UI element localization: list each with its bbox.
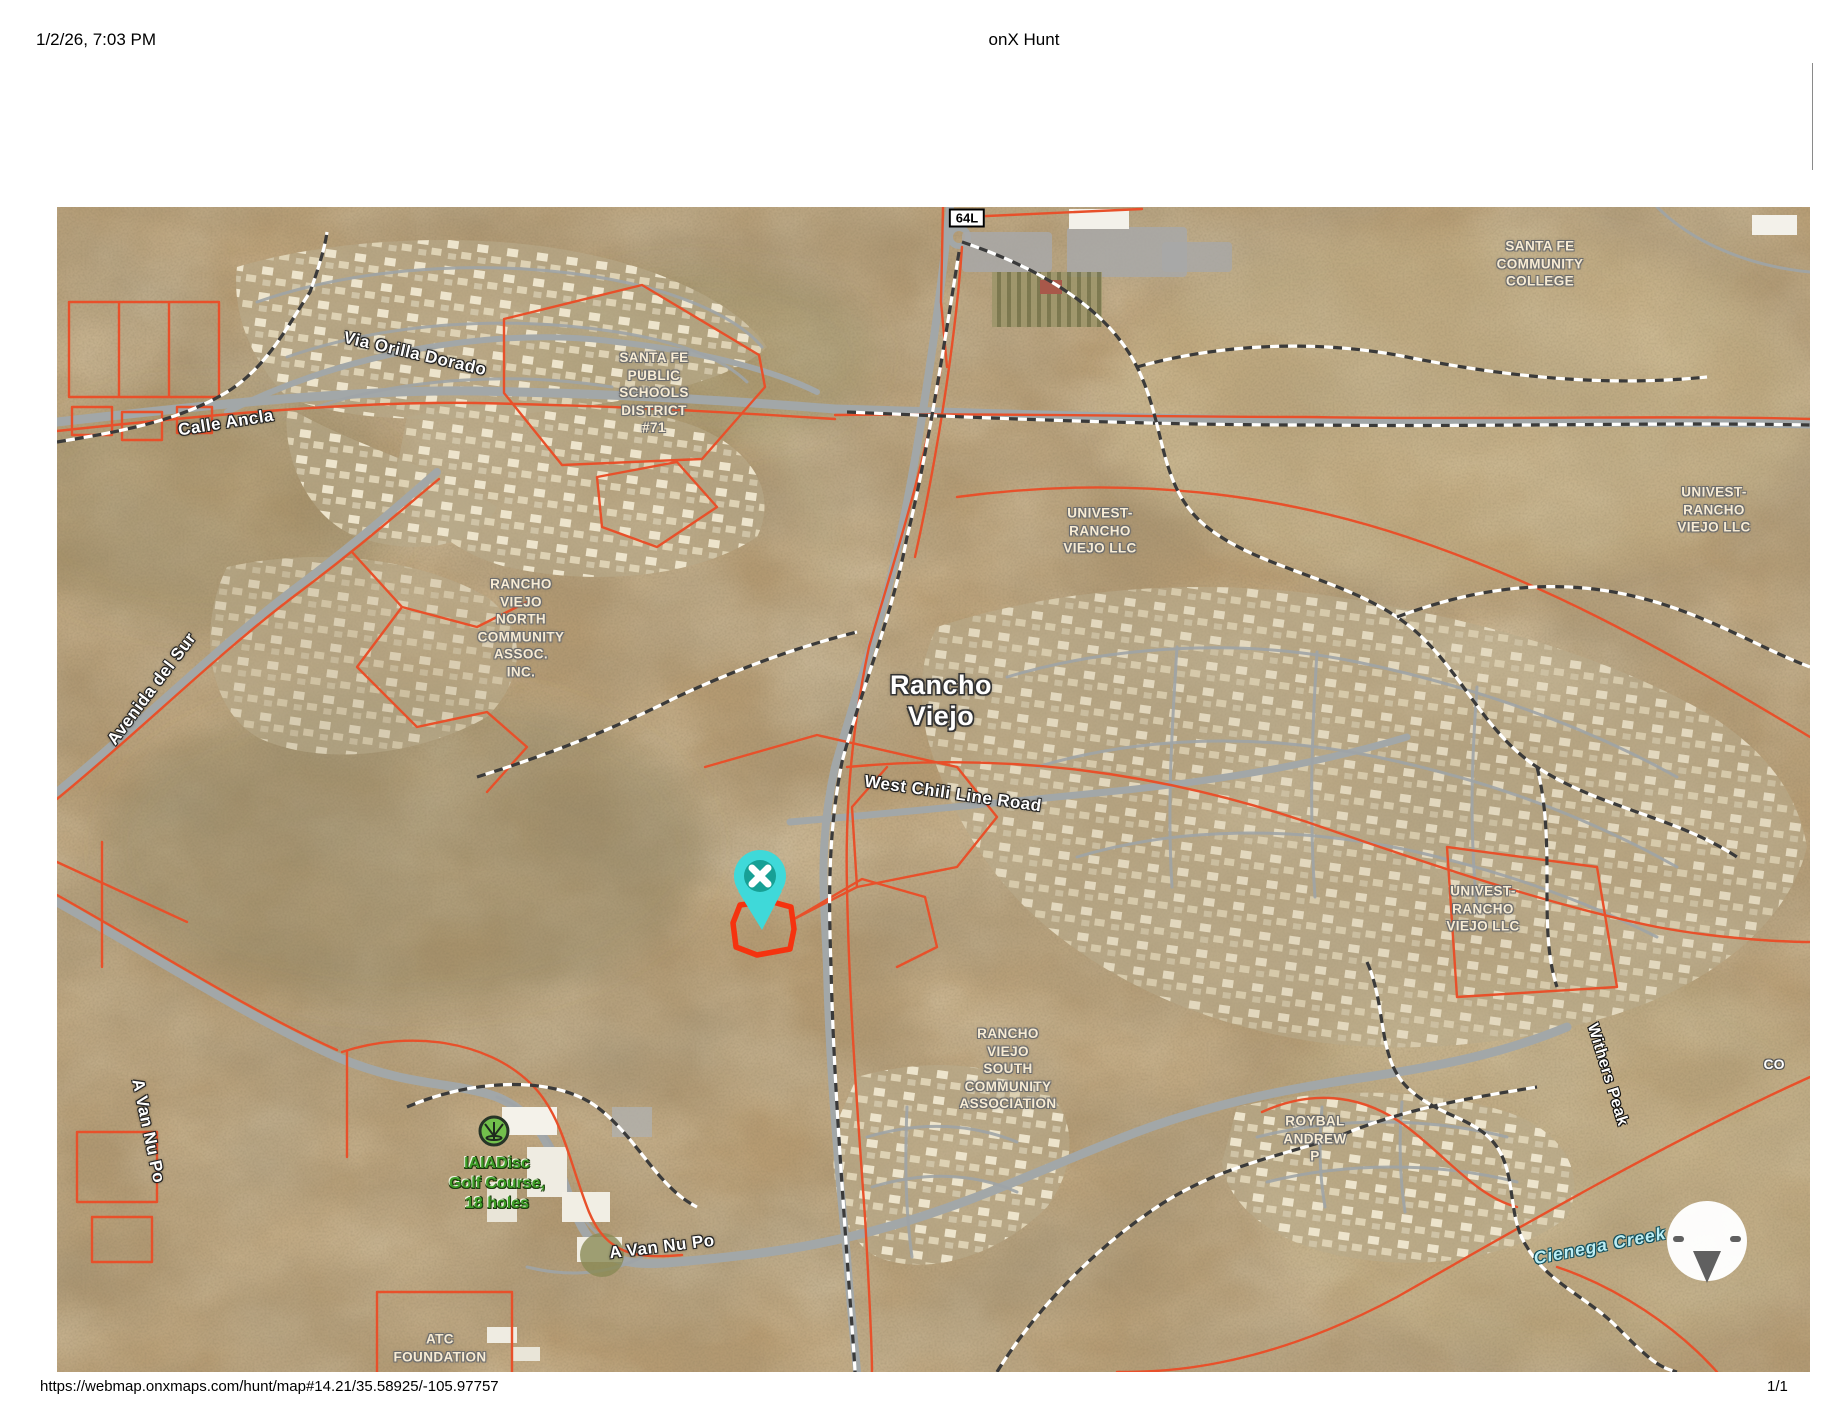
satellite-map[interactable]: 64L SANTA FECOMMUNITYCOLLEGE SANTA FEPUB… — [57, 207, 1810, 1372]
satellite-imagery — [57, 207, 1810, 1372]
route-badge-64l: 64L — [949, 209, 985, 228]
disc-golf-icon — [480, 1117, 508, 1145]
print-page-number: 1/1 — [1767, 1378, 1788, 1395]
scrollbar-artifact — [1812, 63, 1813, 170]
print-timestamp: 1/2/26, 7:03 PM — [36, 30, 156, 50]
print-page-title: onX Hunt — [989, 30, 1060, 50]
print-footer-url: https://webmap.onxmaps.com/hunt/map#14.2… — [40, 1378, 499, 1395]
